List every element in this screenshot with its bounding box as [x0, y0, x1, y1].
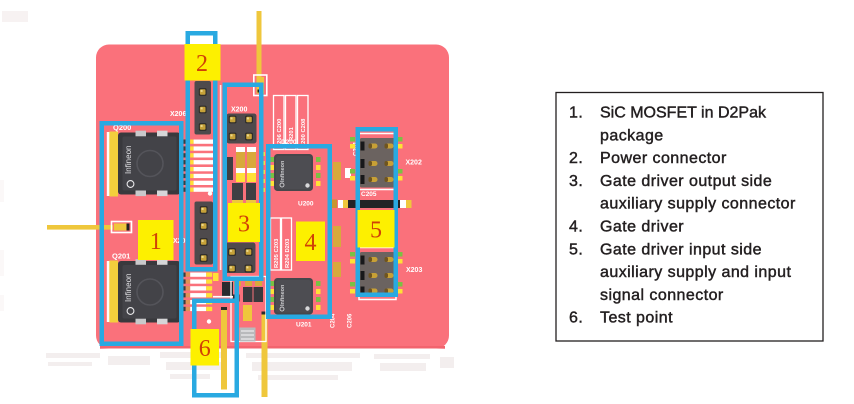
svg-text:Infineon: Infineon: [124, 146, 133, 174]
svg-text:2: 2: [196, 51, 208, 77]
svg-text:Infineon: Infineon: [280, 284, 286, 306]
svg-text:Power connector: Power connector: [600, 150, 727, 167]
svg-text:3.: 3.: [569, 173, 583, 190]
svg-text:X200: X200: [231, 107, 247, 114]
svg-text:6: 6: [199, 336, 211, 362]
svg-text:5: 5: [370, 218, 382, 244]
svg-text:Gate driver: Gate driver: [600, 219, 684, 236]
svg-text:C205: C205: [361, 191, 377, 198]
svg-text:R205 C203: R205 C203: [274, 238, 280, 268]
svg-text:6.: 6.: [569, 310, 583, 327]
svg-text:2.: 2.: [569, 150, 583, 167]
svg-text:Gate driver output side: Gate driver output side: [600, 173, 772, 190]
svg-text:Infineon: Infineon: [280, 160, 286, 182]
svg-text:auxiliary supply and input: auxiliary supply and input: [600, 264, 791, 281]
svg-text:Gate driver input side: Gate driver input side: [600, 241, 762, 258]
svg-text:Infineon: Infineon: [124, 274, 133, 302]
svg-text:1: 1: [150, 229, 162, 255]
svg-text:X202: X202: [406, 160, 422, 167]
svg-text:3: 3: [238, 212, 250, 238]
svg-text:signal connector: signal connector: [600, 287, 724, 304]
svg-text:Q201: Q201: [112, 252, 130, 261]
svg-text:5.: 5.: [569, 241, 583, 258]
svg-text:4: 4: [305, 230, 317, 256]
svg-text:4.: 4.: [569, 219, 583, 236]
svg-text:1.: 1.: [569, 105, 583, 122]
svg-text:Test point: Test point: [600, 310, 673, 327]
svg-text:U200: U200: [298, 201, 314, 208]
svg-text:package: package: [600, 127, 664, 144]
svg-text:auxiliary supply connector: auxiliary supply connector: [600, 196, 796, 213]
svg-text:R200 C208: R200 C208: [301, 118, 307, 148]
svg-text:R204 D203: R204 D203: [285, 238, 291, 268]
svg-text:X203: X203: [406, 267, 422, 274]
svg-text:C206: C206: [348, 313, 354, 328]
svg-text:U201: U201: [296, 322, 312, 329]
svg-text:X206: X206: [170, 111, 186, 118]
svg-text:SiC MOSFET in D2Pak: SiC MOSFET in D2Pak: [600, 105, 767, 122]
